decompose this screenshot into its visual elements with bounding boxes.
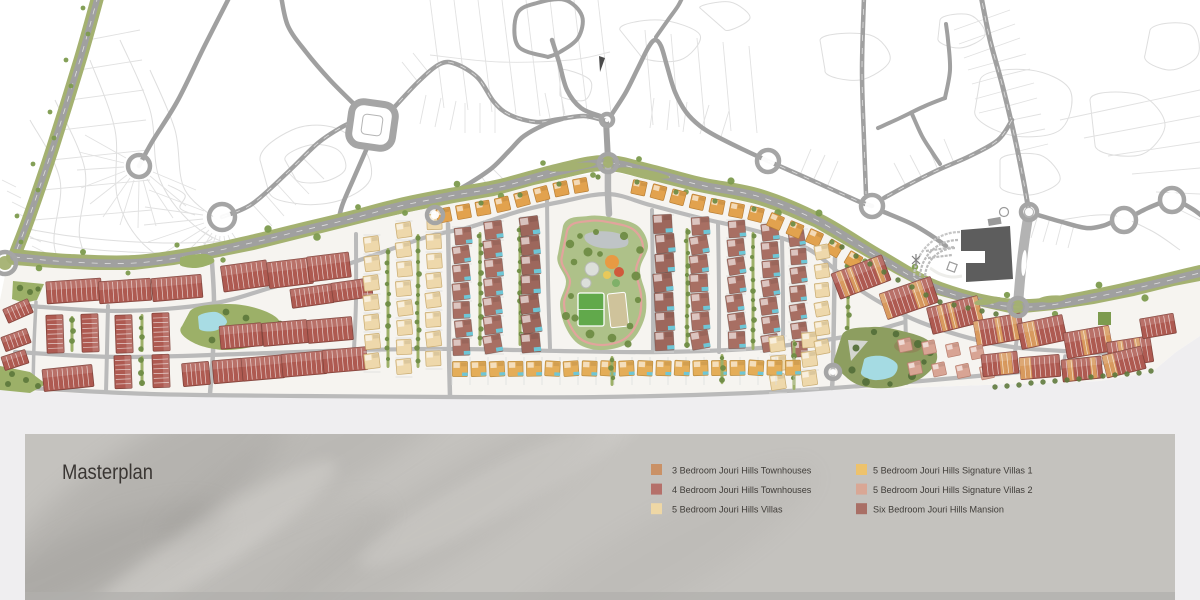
svg-text:5 Bedroom Jouri Hills Signatur: 5 Bedroom Jouri Hills Signature Villas 2	[873, 485, 1033, 495]
svg-text:5 Bedroom Jouri Hills Villas: 5 Bedroom Jouri Hills Villas	[672, 505, 783, 515]
svg-text:4 Bedroom Jouri Hills Townhous: 4 Bedroom Jouri Hills Townhouses	[672, 485, 812, 495]
svg-text:Six Bedroom Jouri Hills Mansio: Six Bedroom Jouri Hills Mansion	[873, 505, 1004, 515]
svg-text:5 Bedroom Jouri Hills Signatur: 5 Bedroom Jouri Hills Signature Villas 1	[873, 465, 1033, 475]
svg-text:Masterplan: Masterplan	[62, 461, 153, 484]
svg-text:3 Bedroom Jouri Hills Townhous: 3 Bedroom Jouri Hills Townhouses	[672, 465, 812, 475]
